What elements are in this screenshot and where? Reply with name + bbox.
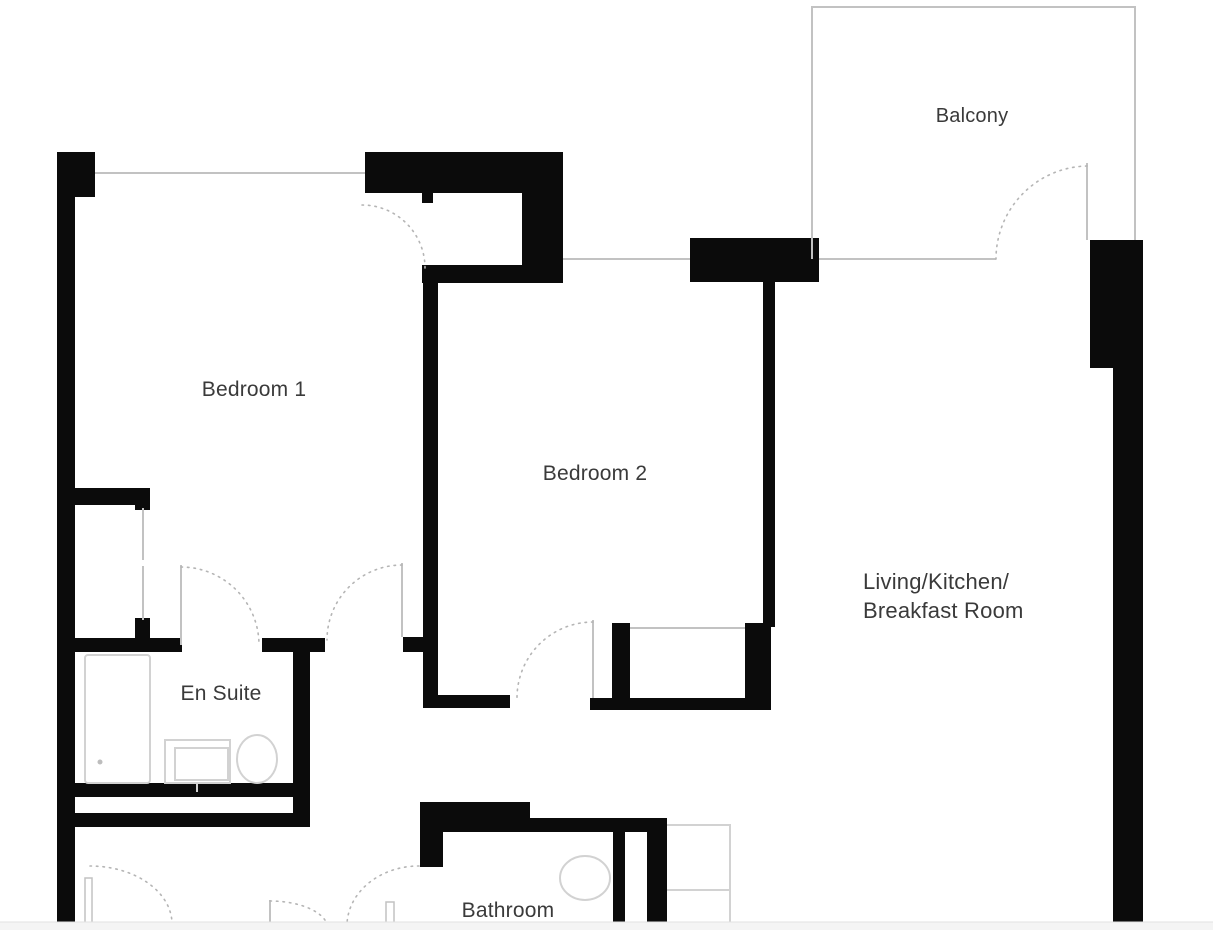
room-label-bedroom-1: Bedroom 1	[202, 378, 307, 401]
room-label-balcony: Balcony	[936, 105, 1009, 127]
wall-segment	[70, 638, 182, 652]
bathroom-fixtures	[560, 856, 610, 900]
wall-segment	[423, 283, 438, 695]
bottom-strip	[0, 922, 1213, 930]
wall-segment	[647, 818, 667, 925]
walls	[57, 152, 1143, 925]
sink-basin	[175, 748, 228, 780]
wall-segment	[690, 238, 819, 282]
door-jamb	[85, 878, 92, 923]
wall-segment	[745, 623, 771, 710]
page-bottom-strip	[0, 922, 1213, 930]
toilet	[560, 856, 610, 900]
door-arc	[996, 166, 1087, 259]
room-label-ensuite: En Suite	[181, 682, 262, 705]
wall-segment	[612, 623, 630, 703]
room-label-living-line2: Breakfast Room	[863, 598, 1024, 623]
door-arc	[362, 205, 425, 268]
wall-segment	[74, 813, 310, 827]
shower	[85, 655, 150, 783]
wall-segment	[57, 197, 75, 925]
wall-segment	[423, 695, 510, 708]
wall-segment	[135, 618, 150, 640]
wall-segment	[365, 152, 563, 193]
door-arc	[327, 565, 402, 640]
wall-segment	[422, 193, 433, 203]
room-label-bathroom: Bathroom	[462, 899, 555, 922]
kitchen-counter	[667, 825, 730, 922]
room-label-living-line1: Living/Kitchen/	[863, 569, 1010, 594]
counter-outline	[667, 825, 730, 922]
door-arc	[517, 622, 593, 698]
toilet	[237, 735, 277, 783]
door-jamb	[386, 902, 394, 923]
wall-segment	[420, 802, 530, 832]
wall-segment	[530, 818, 667, 832]
wall-segment	[57, 152, 95, 197]
wall-segment	[763, 282, 775, 627]
wall-segment	[60, 783, 310, 797]
wall-segment	[293, 645, 310, 827]
wall-segment	[422, 265, 563, 283]
wall-segment	[1090, 240, 1143, 368]
room-label-bedroom-2: Bedroom 2	[543, 462, 648, 485]
ensuite-fixtures	[85, 655, 277, 792]
wall-segment	[135, 488, 150, 510]
wall-segment	[613, 832, 625, 925]
shower-drain	[98, 760, 103, 765]
door-arc	[181, 567, 259, 645]
wall-segment	[420, 830, 443, 867]
wall-segment	[1113, 368, 1143, 925]
windows	[95, 7, 1135, 628]
door-arc	[90, 866, 172, 923]
wall-segment	[403, 637, 423, 652]
door-arc	[347, 866, 419, 924]
floor-plan: Balcony Bedroom 1 Bedroom 2 Living/Kitch…	[0, 0, 1213, 930]
